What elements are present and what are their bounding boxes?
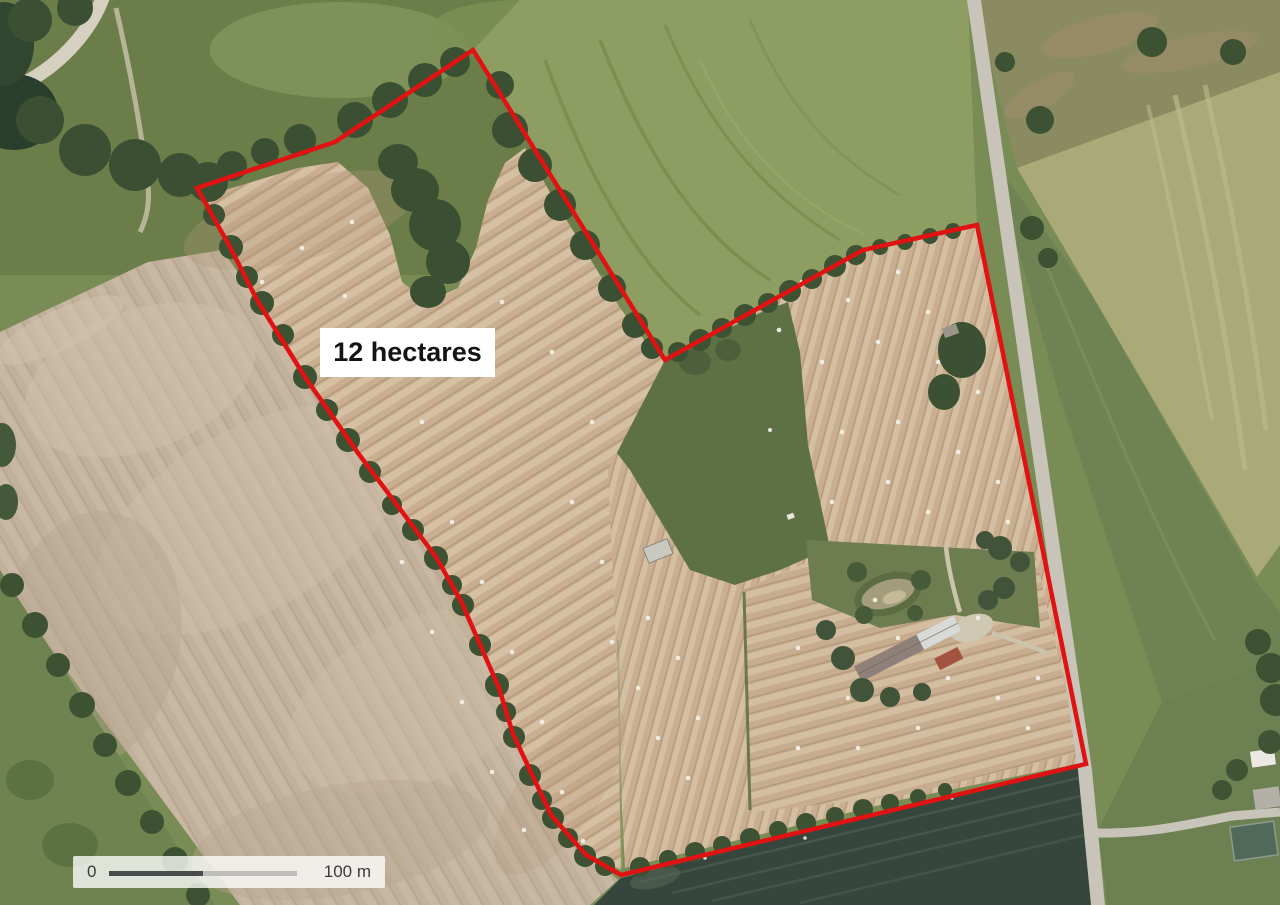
scale-distance-label: 100 m [297,862,371,882]
scale-bar-dark-segment [109,871,203,876]
aerial-photo [0,0,1280,905]
tennis-court [1230,821,1278,861]
map-canvas: 12 hectares 0 100 m [0,0,1280,905]
area-label: 12 hectares [320,328,495,377]
scale-bar-line [109,871,297,876]
scale-bar: 0 100 m [73,856,385,888]
scale-zero-label: 0 [87,862,96,882]
area-label-text: 12 hectares [333,337,482,368]
scale-bar-light-segment [203,871,297,876]
